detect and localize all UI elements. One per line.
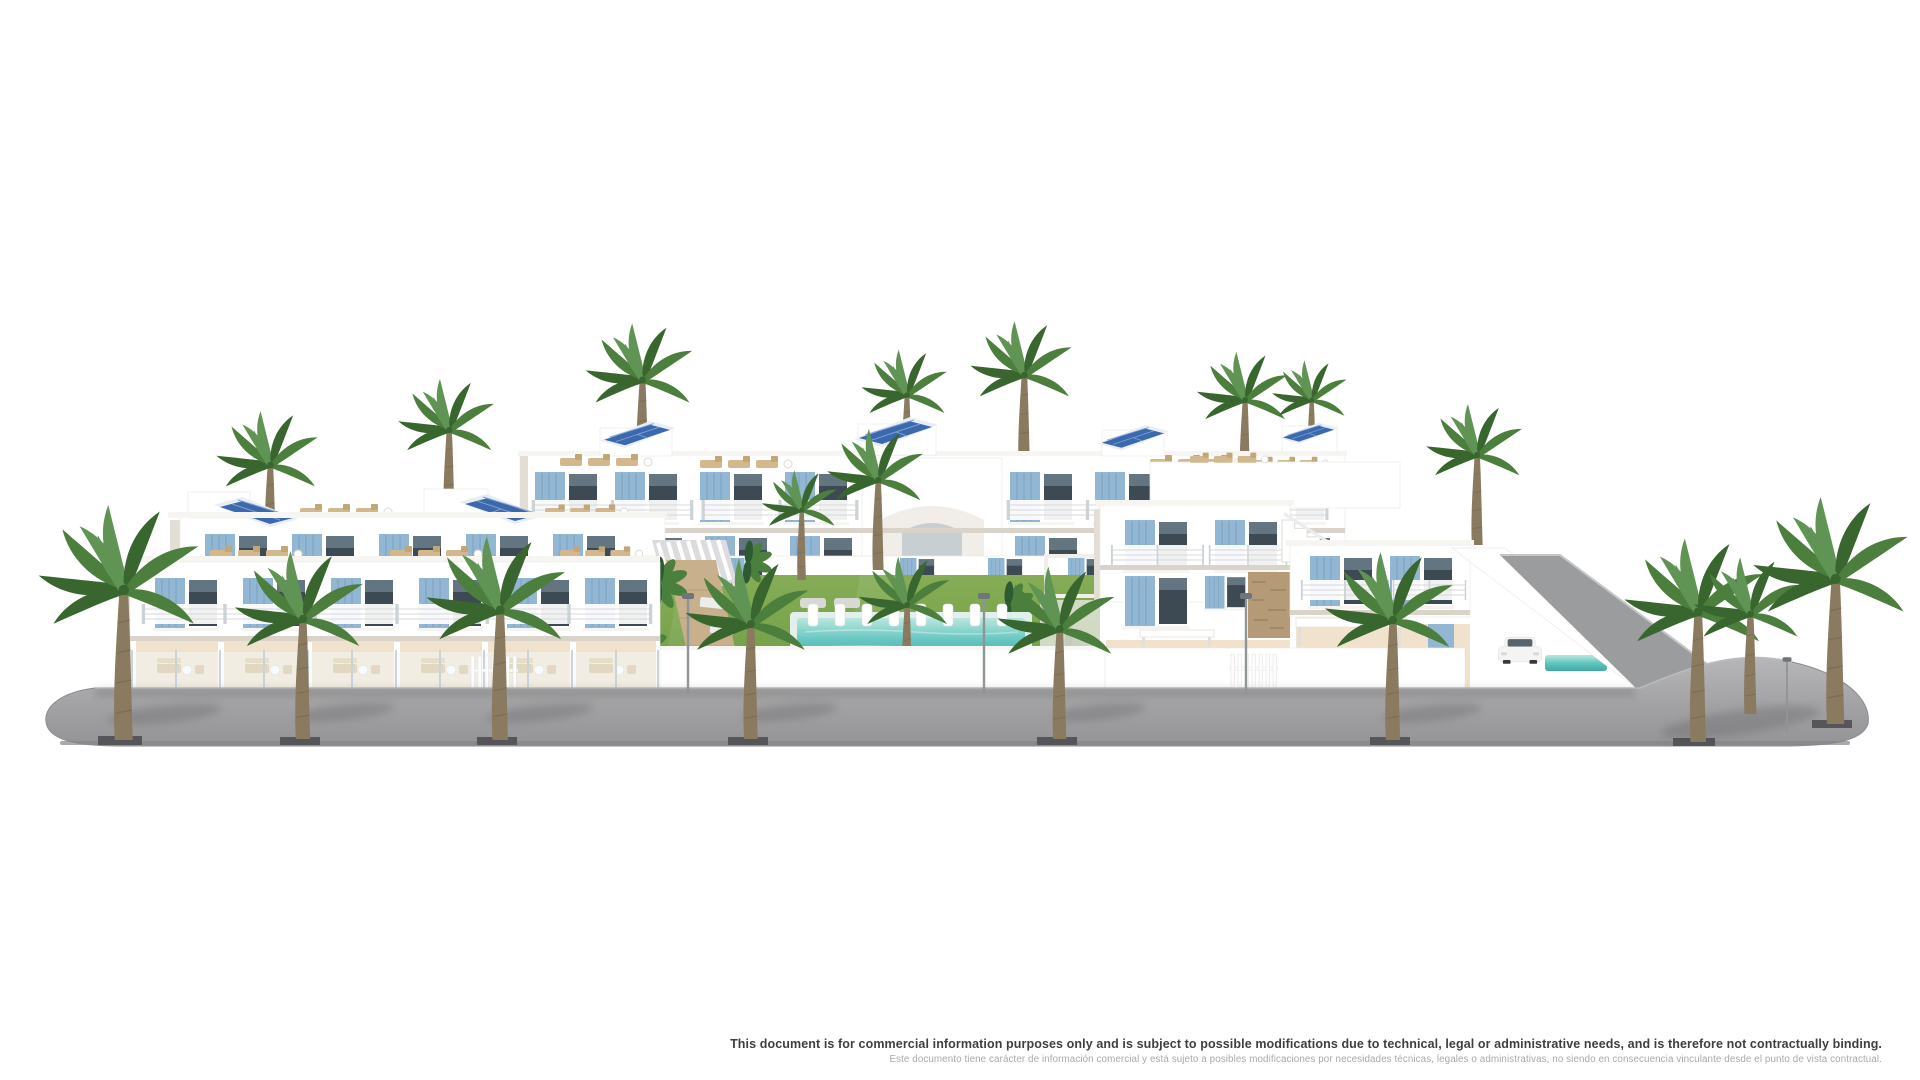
balcony-railing [1208, 545, 1288, 565]
garden-wall [660, 648, 1105, 692]
disclaimer-text-english: This document is for commercial informat… [730, 1036, 1882, 1053]
palm-tree [970, 321, 1075, 470]
carport-roof [1140, 630, 1214, 637]
front-boundary [132, 646, 1465, 692]
palm-tree [1426, 404, 1526, 545]
legal-disclaimer: This document is for commercial informat… [730, 1036, 1882, 1066]
disclaimer-text-spanish: Este documento tiene carácter de informa… [730, 1053, 1882, 1066]
residential-complex-rendering [0, 0, 1920, 1080]
parked-car [1498, 637, 1542, 664]
curb [60, 741, 1850, 745]
architectural-rendering-page: This document is for commercial informat… [0, 0, 1920, 1080]
balcony-railing [1110, 545, 1205, 565]
villa-wall [1105, 648, 1465, 692]
